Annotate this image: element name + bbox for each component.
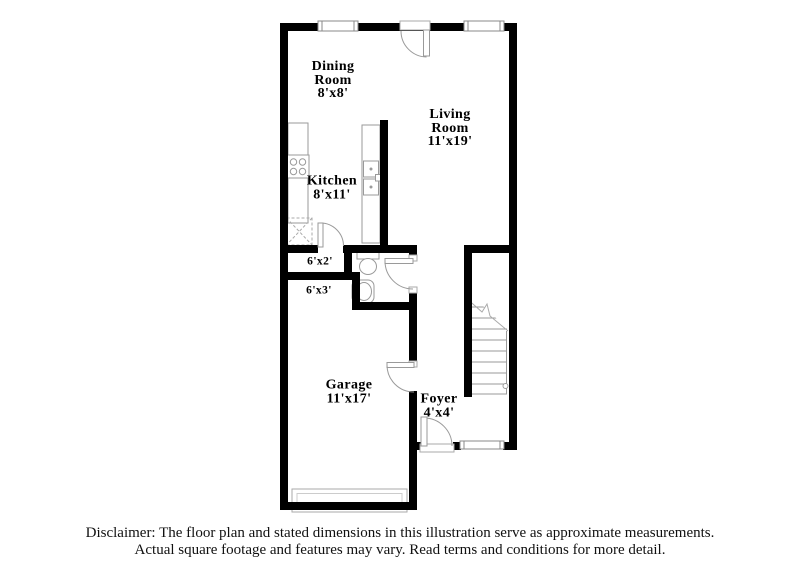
toilet-icon xyxy=(357,252,379,275)
room-name-line: Dining xyxy=(312,60,355,74)
room-label-hall: 6'x3' xyxy=(306,286,332,297)
room-name-line: Living xyxy=(428,108,473,122)
room-name-line: Foyer xyxy=(421,393,458,407)
wall-foyer-bottom-a xyxy=(409,442,421,450)
door-top-entry xyxy=(400,21,430,57)
room-dims: 8'x11' xyxy=(307,188,357,202)
window-foyer xyxy=(460,441,504,449)
room-name-line: Garage xyxy=(326,379,373,393)
door-closet xyxy=(318,223,344,247)
room-label-living: Living Room 11'x19' xyxy=(428,108,473,149)
room-dims: 4'x4' xyxy=(421,406,458,420)
wall-bath-bottom xyxy=(352,302,417,310)
room-dims: 6'x3' xyxy=(306,286,332,297)
floor-plan-page: Dining Room 8'x8' Living Room 11'x19' Ki… xyxy=(0,0,800,582)
wall-bath-left-upper xyxy=(344,245,352,280)
floor-plan-drawing xyxy=(0,0,800,582)
window-dining xyxy=(318,21,358,31)
wall-garage-bottom xyxy=(280,502,417,510)
room-label-foyer: Foyer 4'x4' xyxy=(421,393,458,420)
room-label-garage: Garage 11'x17' xyxy=(326,379,373,406)
room-label-kitchen: Kitchen 8'x11' xyxy=(307,175,357,202)
stove-icon xyxy=(287,155,309,178)
wall-divider-mid xyxy=(409,289,417,363)
wall-mid-left xyxy=(286,245,318,253)
wall-right xyxy=(509,23,517,450)
wall-kitchen-peninsula xyxy=(380,120,388,253)
room-dims: 11'x17' xyxy=(326,392,373,406)
wall-mid-right xyxy=(343,245,417,253)
room-name-line: Kitchen xyxy=(307,175,357,189)
room-dims: 6'x2' xyxy=(307,257,333,268)
stairs-newel xyxy=(503,384,508,389)
wall-foyer-bottom-c xyxy=(503,442,517,450)
wall-left xyxy=(280,23,288,510)
disclaimer-line-2: Actual square footage and features may v… xyxy=(0,542,800,559)
room-dims: 11'x19' xyxy=(428,135,473,149)
wall-divider-bottom xyxy=(409,391,417,510)
door-bathroom xyxy=(385,255,417,293)
wall-stair-left xyxy=(464,245,472,397)
room-name-line: Room xyxy=(312,73,355,87)
door-garage-foyer xyxy=(387,361,417,392)
room-dims: 8'x8' xyxy=(312,87,355,101)
room-label-dining: Dining Room 8'x8' xyxy=(312,60,355,101)
room-name-line: Room xyxy=(428,121,473,135)
disclaimer-line-1: Disclaimer: The floor plan and stated di… xyxy=(0,525,800,542)
disclaimer-text: Disclaimer: The floor plan and stated di… xyxy=(0,525,800,559)
room-label-closet: 6'x2' xyxy=(307,257,333,268)
window-living xyxy=(464,21,504,31)
door-front-entry xyxy=(420,417,454,452)
